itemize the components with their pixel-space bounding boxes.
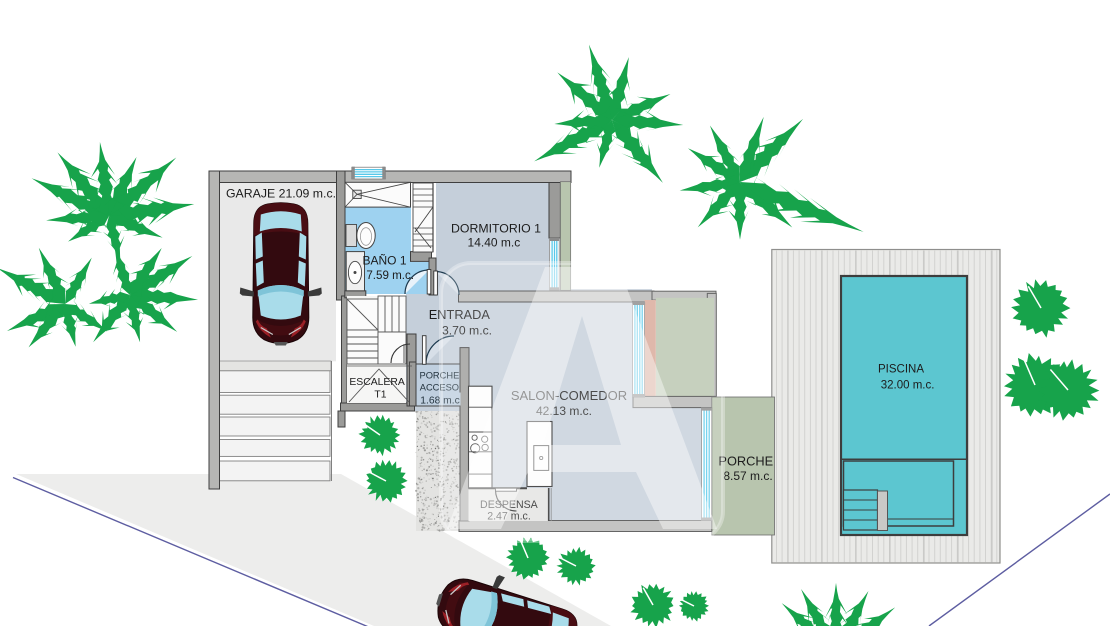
svg-text:8.57 m.c.: 8.57 m.c. xyxy=(723,469,772,483)
svg-text:32.00 m.c.: 32.00 m.c. xyxy=(881,380,935,392)
svg-text:7.59 m.c.: 7.59 m.c. xyxy=(366,269,414,282)
svg-text:PORCHE: PORCHE xyxy=(718,453,773,468)
svg-text:DORMITORIO 1: DORMITORIO 1 xyxy=(451,221,541,235)
svg-text:14.40 m.c: 14.40 m.c xyxy=(468,236,521,250)
svg-text:T1: T1 xyxy=(374,389,386,400)
svg-text:GARAJE 21.09 m.c.: GARAJE 21.09 m.c. xyxy=(226,187,336,201)
svg-text:PISCINA: PISCINA xyxy=(878,364,924,376)
svg-text:BAÑO 1: BAÑO 1 xyxy=(362,254,406,268)
svg-text:ESCALERA: ESCALERA xyxy=(349,377,405,388)
